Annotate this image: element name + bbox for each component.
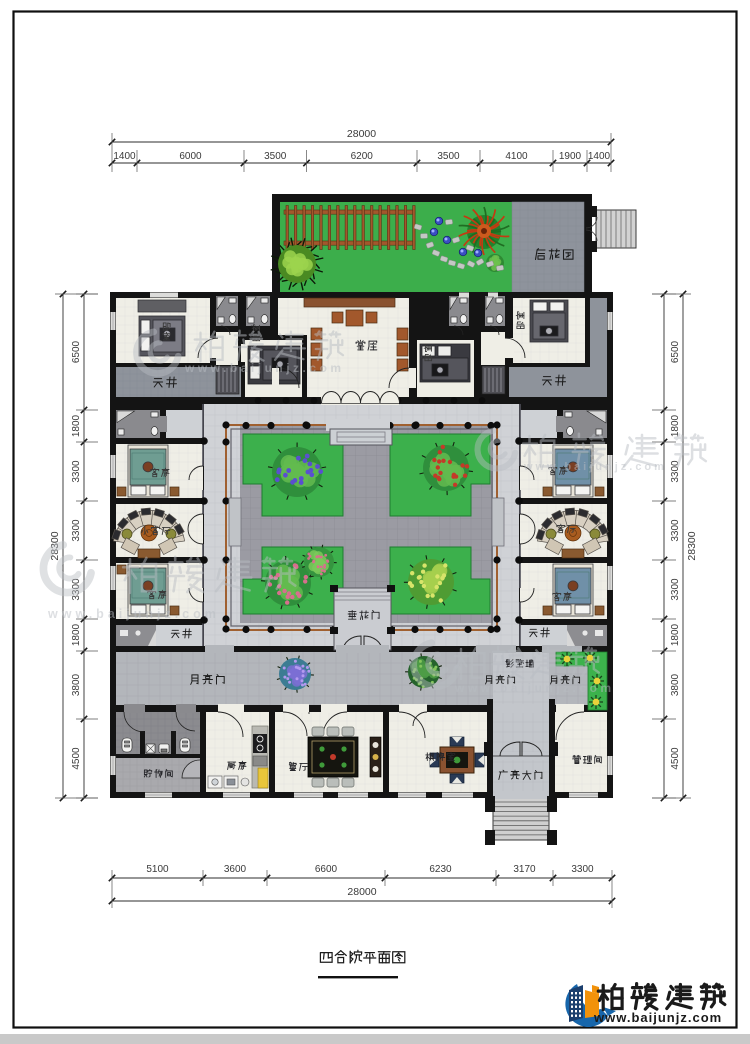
- svg-text:3300: 3300: [71, 460, 82, 483]
- svg-text:3300: 3300: [571, 864, 594, 875]
- svg-text:4500: 4500: [670, 747, 681, 770]
- svg-text:3170: 3170: [513, 864, 536, 875]
- svg-text:5100: 5100: [146, 864, 169, 875]
- svg-text:4100: 4100: [505, 151, 528, 162]
- svg-text:www.baijunjz.com: www.baijunjz.com: [47, 607, 220, 621]
- svg-text:6600: 6600: [315, 864, 338, 875]
- svg-text:28000: 28000: [347, 128, 376, 140]
- svg-text:www.baijunjz.com: www.baijunjz.com: [184, 361, 345, 375]
- svg-text:28000: 28000: [347, 886, 376, 898]
- svg-text:6500: 6500: [71, 340, 82, 363]
- svg-text:1400: 1400: [588, 151, 611, 162]
- svg-text:28300: 28300: [686, 531, 698, 560]
- svg-text:1400: 1400: [113, 151, 136, 162]
- svg-text:1800: 1800: [71, 623, 82, 646]
- svg-text:3600: 3600: [224, 864, 247, 875]
- svg-text:www.baijunjz.com: www.baijunjz.com: [523, 461, 667, 473]
- svg-text:3800: 3800: [670, 673, 681, 696]
- svg-text:3500: 3500: [437, 151, 460, 162]
- svg-text:1800: 1800: [71, 414, 82, 437]
- svg-text:3800: 3800: [71, 673, 82, 696]
- svg-text:6230: 6230: [429, 864, 452, 875]
- svg-text:6500: 6500: [670, 340, 681, 363]
- svg-text:6000: 6000: [179, 151, 202, 162]
- svg-text:3500: 3500: [264, 151, 287, 162]
- svg-text:1800: 1800: [670, 623, 681, 646]
- svg-text:6200: 6200: [351, 151, 374, 162]
- svg-text:3300: 3300: [71, 519, 82, 542]
- svg-text:3300: 3300: [670, 519, 681, 542]
- svg-text:www.baijunjz.com: www.baijunjz.com: [454, 681, 615, 695]
- svg-text:1900: 1900: [559, 151, 582, 162]
- svg-text:4500: 4500: [71, 747, 82, 770]
- svg-text:www.baijunjz.com: www.baijunjz.com: [593, 1010, 722, 1025]
- svg-text:3300: 3300: [670, 578, 681, 601]
